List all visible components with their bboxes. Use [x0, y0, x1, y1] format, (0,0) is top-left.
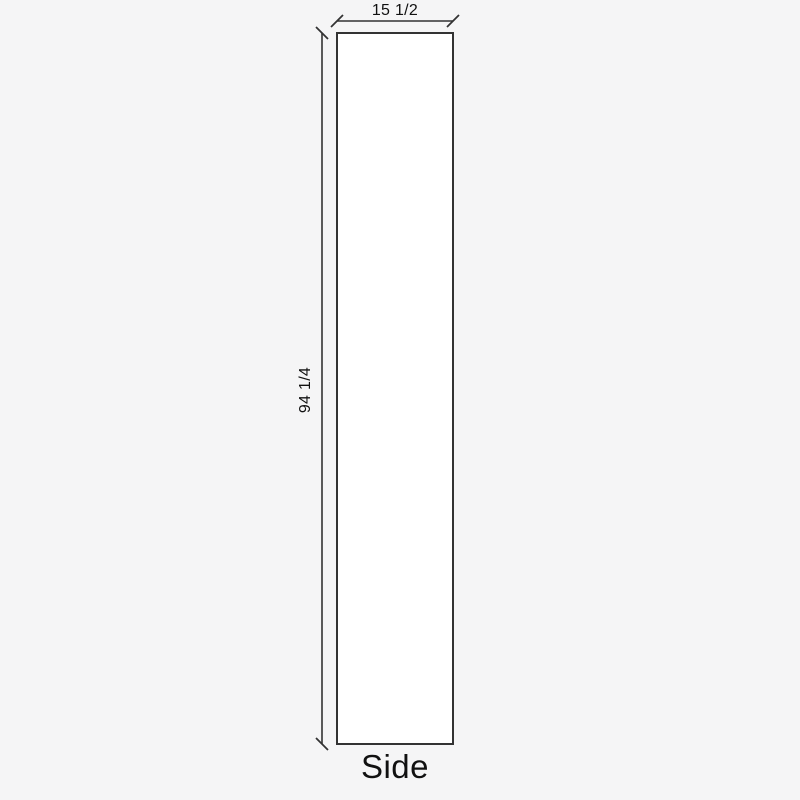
height-dimension-label: 94 1/4 [297, 367, 315, 413]
panel-drawing: 15 1/2 94 1/4 Side [0, 0, 800, 800]
drawing-lines [0, 0, 800, 800]
panel-outline [337, 33, 453, 744]
width-dimension-label: 15 1/2 [337, 2, 453, 20]
panel-name-label: Side [285, 748, 505, 786]
